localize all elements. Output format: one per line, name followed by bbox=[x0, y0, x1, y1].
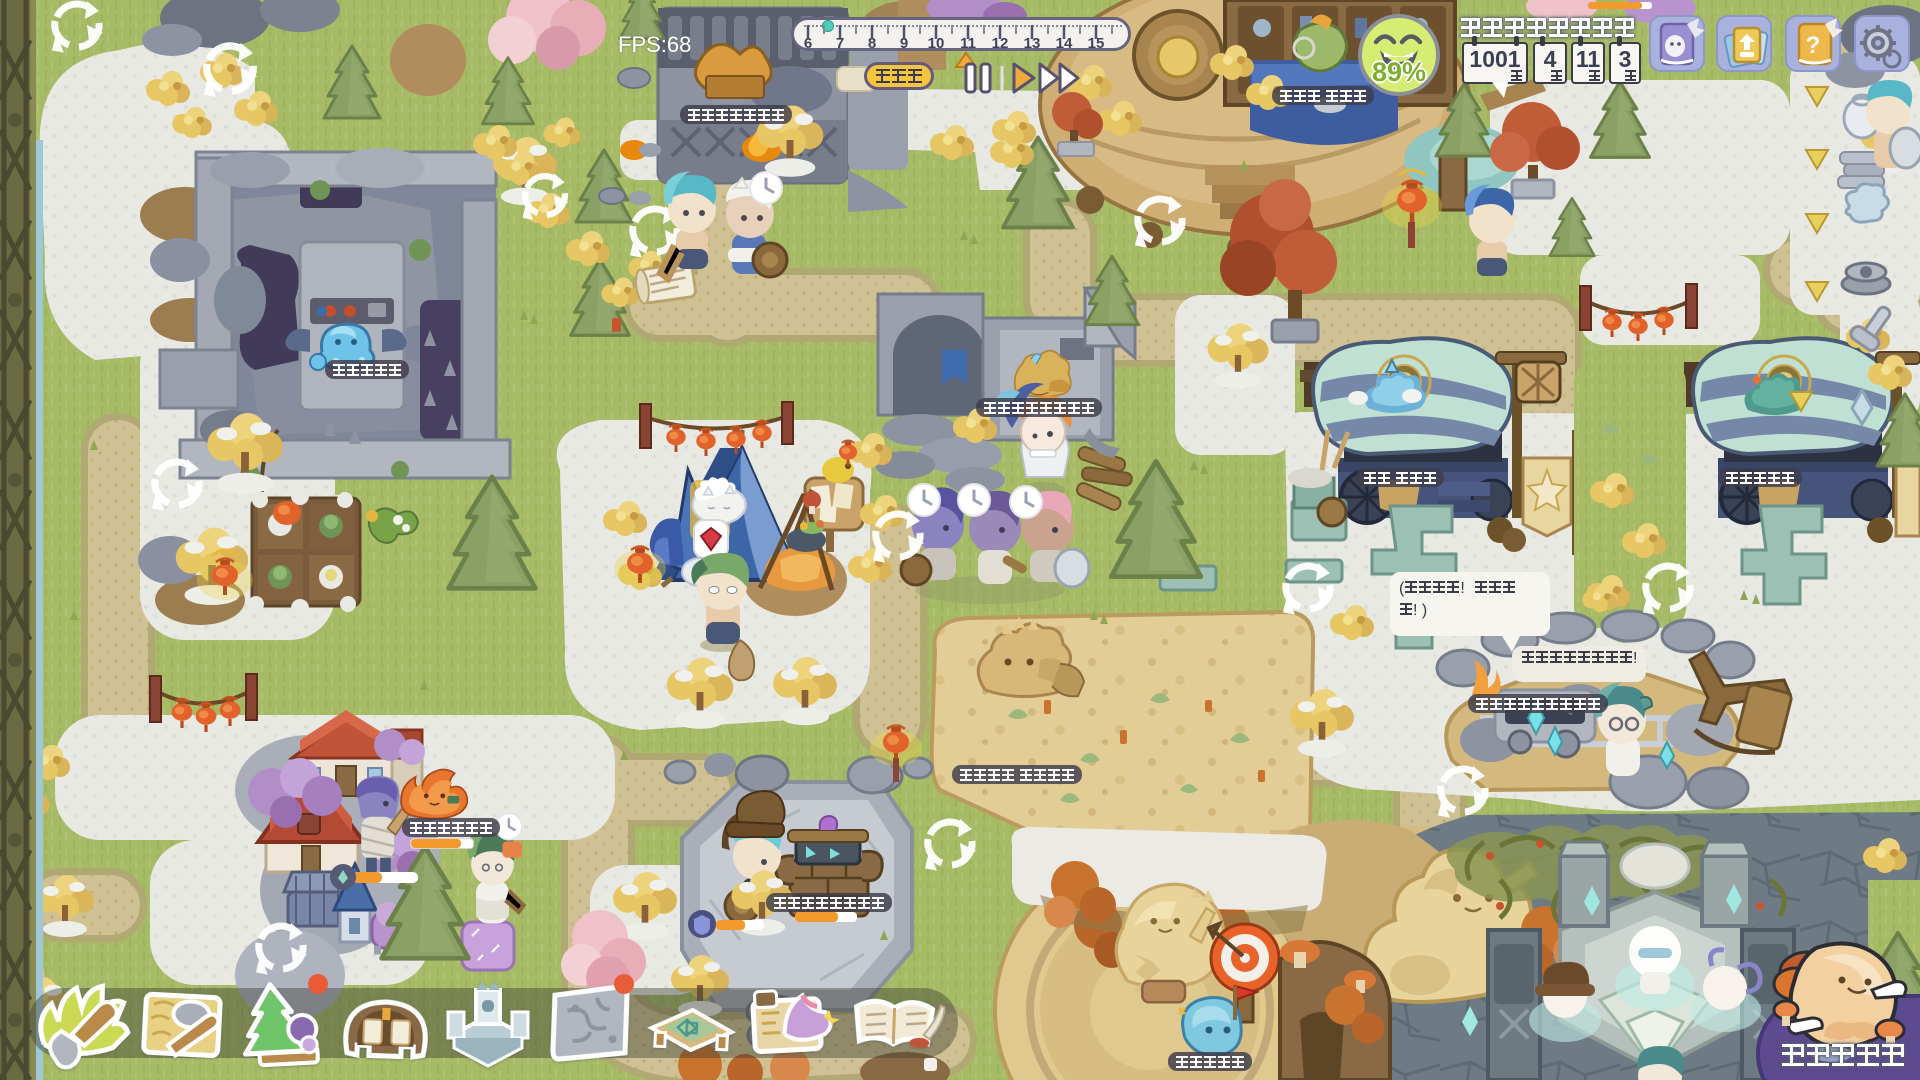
svg-text:12: 12 bbox=[992, 35, 1009, 52]
svg-text:8: 8 bbox=[868, 35, 876, 52]
svg-text:7: 7 bbox=[836, 35, 844, 52]
svg-text:14: 14 bbox=[1056, 35, 1073, 52]
svg-text:9: 9 bbox=[900, 35, 908, 52]
svg-text:10: 10 bbox=[928, 35, 945, 52]
svg-text:15: 15 bbox=[1088, 35, 1105, 52]
svg-text:11: 11 bbox=[960, 35, 976, 52]
svg-text:6: 6 bbox=[804, 35, 812, 52]
svg-text:?: ? bbox=[1806, 32, 1821, 59]
svg-text:13: 13 bbox=[1024, 35, 1041, 52]
